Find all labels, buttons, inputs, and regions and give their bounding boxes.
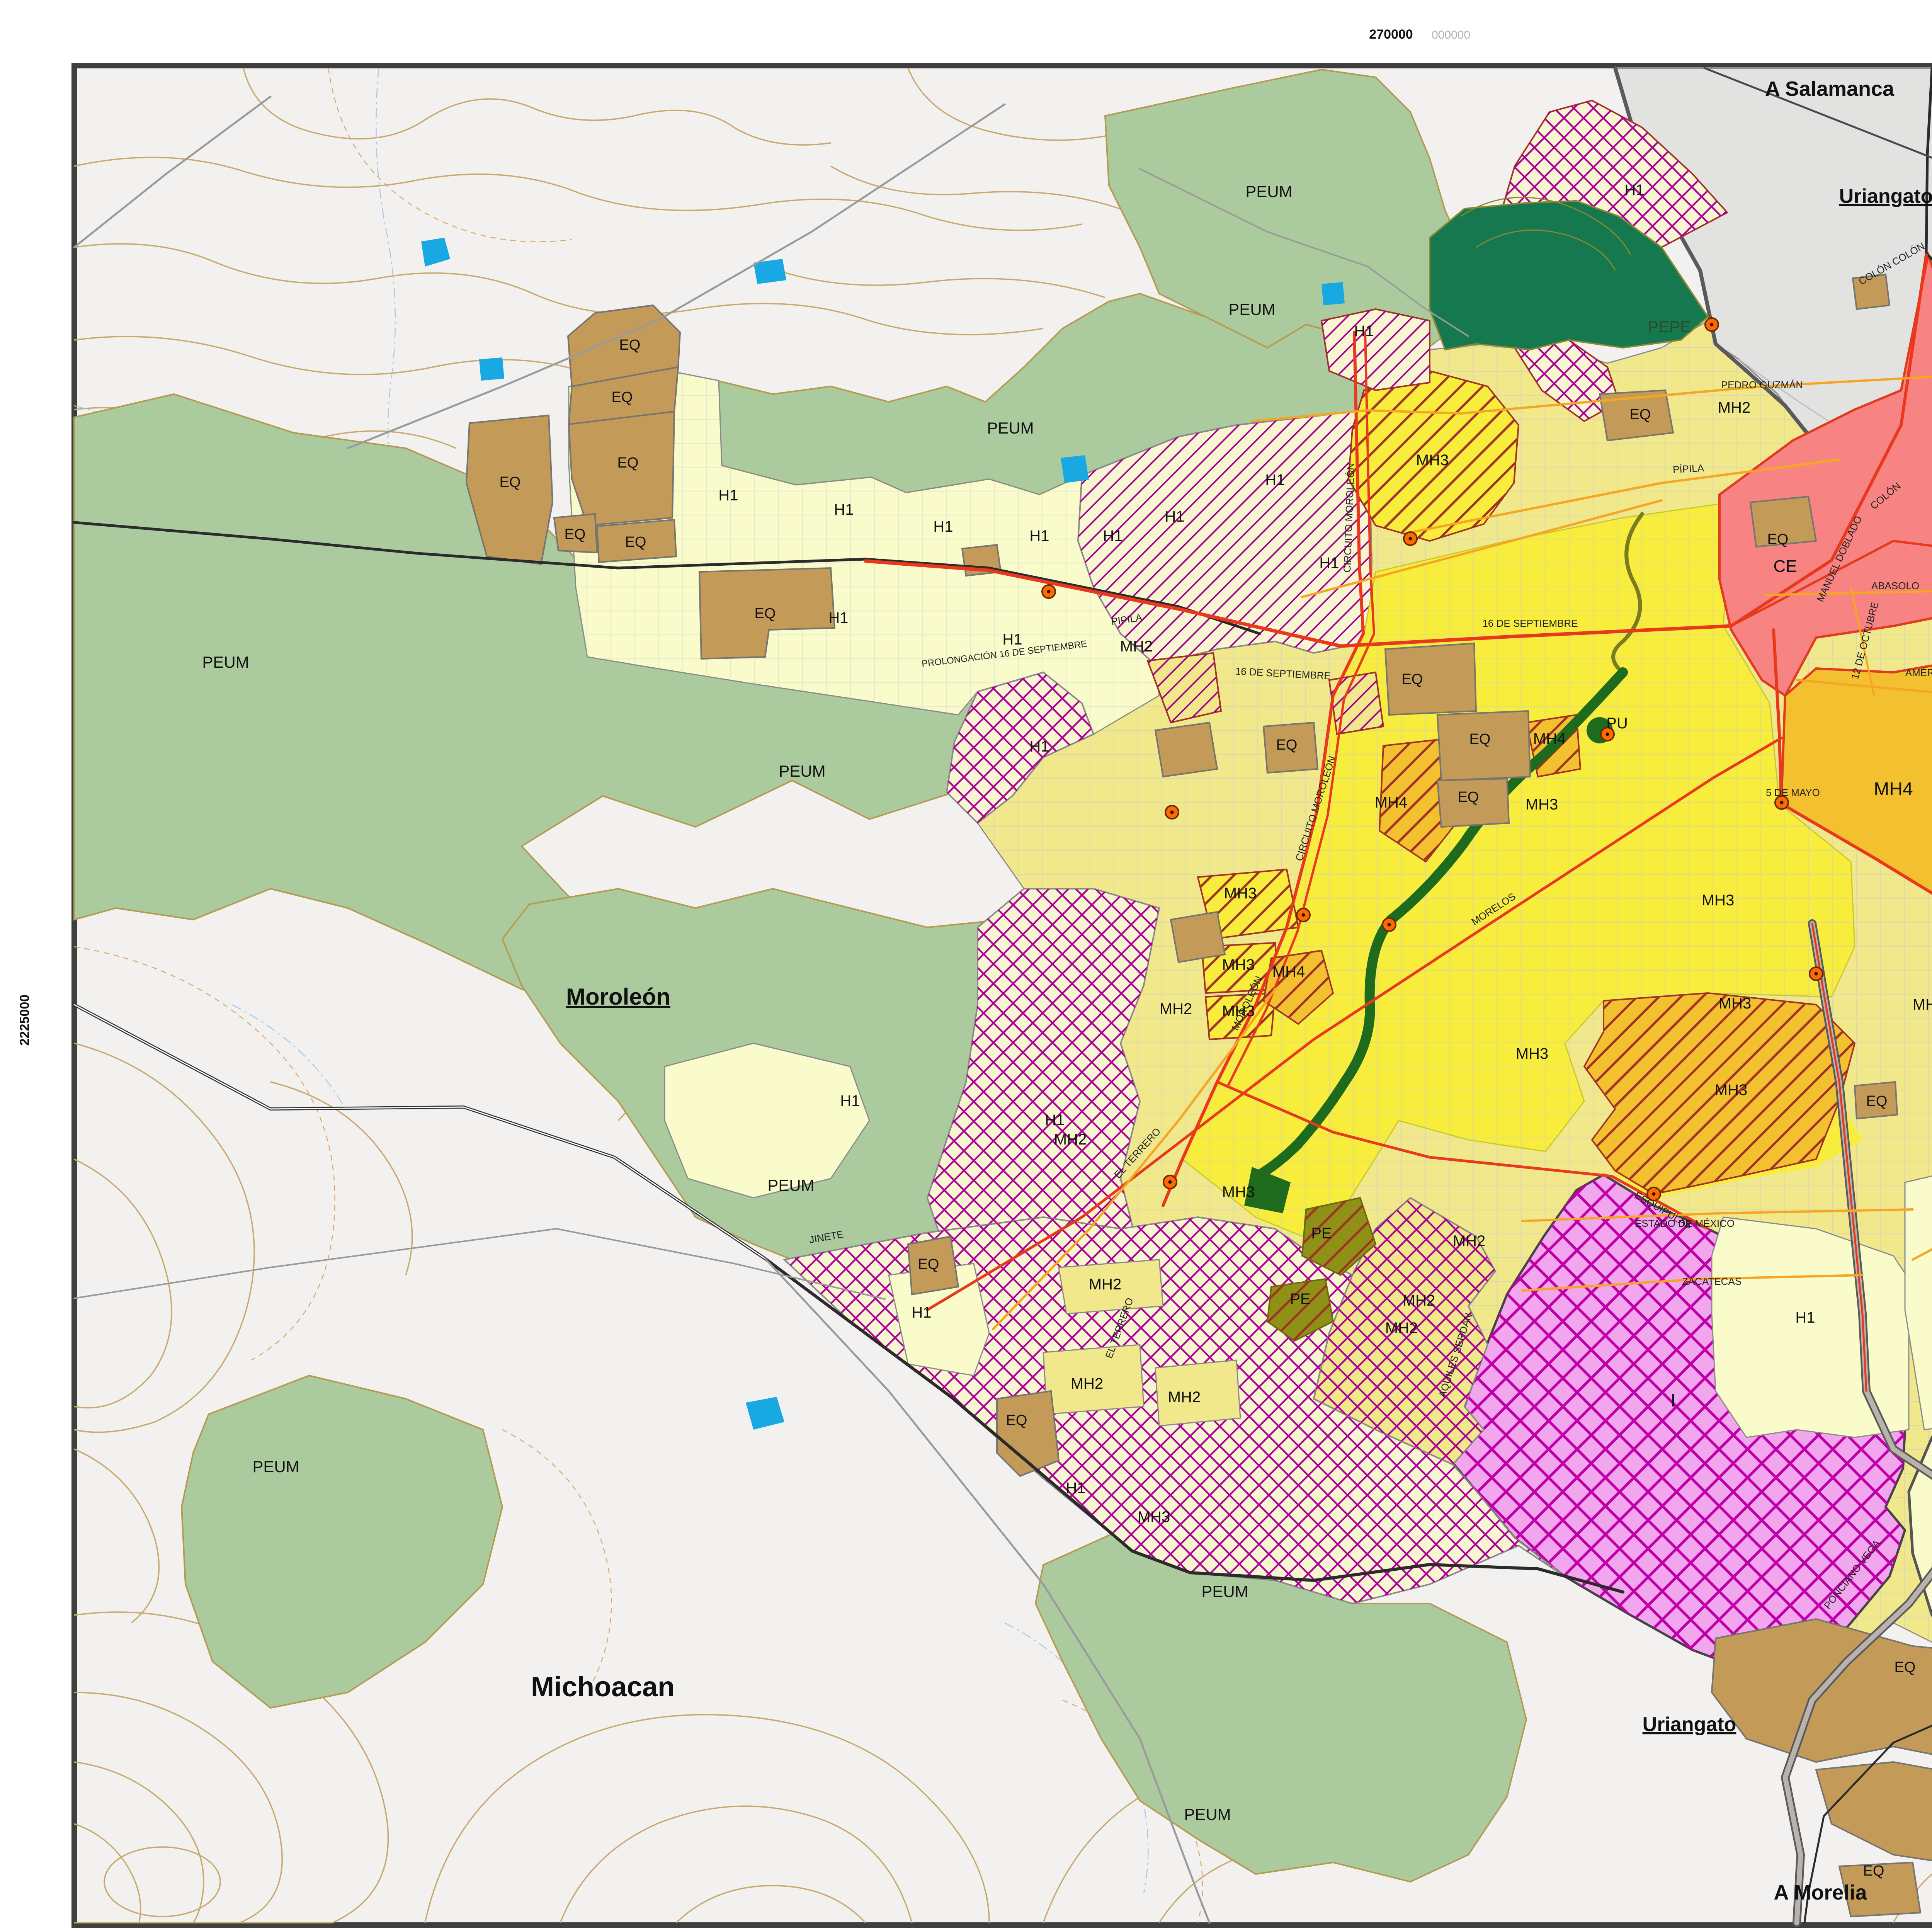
svg-text:EQ: EQ	[612, 389, 633, 405]
svg-text:MH3: MH3	[1702, 892, 1734, 909]
svg-text:MH3: MH3	[1222, 956, 1255, 973]
svg-text:ABASOLO: ABASOLO	[1871, 580, 1919, 592]
svg-text:H1: H1	[1165, 508, 1184, 525]
svg-text:MH2: MH2	[1913, 996, 1932, 1013]
svg-text:Uriangato: Uriangato	[1643, 1713, 1736, 1736]
svg-text:EQ: EQ	[1006, 1412, 1027, 1429]
svg-text:EQ: EQ	[1866, 1093, 1888, 1109]
svg-text:CE: CE	[1773, 557, 1797, 576]
svg-text:MH2: MH2	[1168, 1389, 1201, 1406]
svg-text:H1: H1	[933, 518, 953, 535]
svg-text:PEUM: PEUM	[202, 653, 249, 671]
svg-text:H1: H1	[1354, 323, 1374, 340]
svg-text:Uriangato: Uriangato	[1839, 185, 1932, 207]
svg-text:PEPE: PEPE	[1648, 318, 1691, 336]
svg-text:PEUM: PEUM	[1245, 182, 1292, 201]
svg-text:EQ: EQ	[918, 1256, 939, 1272]
svg-text:H1: H1	[1265, 471, 1285, 488]
svg-text:H1: H1	[1624, 182, 1644, 199]
svg-text:EQ: EQ	[1895, 1659, 1916, 1675]
svg-text:H1: H1	[1029, 738, 1049, 755]
svg-text:PÍPILA: PÍPILA	[1672, 462, 1704, 475]
svg-text:EQ: EQ	[1767, 531, 1789, 548]
svg-text:PEDRO GUZMÁN: PEDRO GUZMÁN	[1721, 379, 1803, 391]
svg-text:AMÉRICA: AMÉRICA	[1905, 667, 1932, 679]
svg-text:H1: H1	[1002, 631, 1022, 648]
svg-text:H1: H1	[828, 609, 848, 626]
svg-text:H1: H1	[1029, 527, 1049, 544]
svg-text:000000: 000000	[1432, 29, 1470, 41]
svg-text:PEUM: PEUM	[1201, 1582, 1248, 1600]
svg-text:16 DE SEPTIEMBRE: 16 DE SEPTIEMBRE	[1482, 617, 1578, 629]
svg-text:MH2: MH2	[1718, 399, 1750, 416]
svg-text:H1: H1	[1045, 1112, 1065, 1129]
svg-text:MH4: MH4	[1375, 794, 1407, 811]
svg-text:EQ: EQ	[500, 474, 521, 490]
svg-text:EQ: EQ	[1469, 731, 1491, 747]
svg-text:MH2: MH2	[1071, 1375, 1103, 1392]
svg-text:MH4: MH4	[1272, 963, 1305, 980]
svg-text:PEUM: PEUM	[987, 419, 1034, 437]
svg-text:EQ: EQ	[1276, 737, 1298, 753]
svg-text:EQ: EQ	[619, 337, 641, 353]
svg-text:H1: H1	[718, 487, 738, 504]
svg-text:PEUM: PEUM	[779, 762, 825, 780]
svg-text:MH2: MH2	[1453, 1233, 1485, 1250]
svg-text:PE: PE	[1311, 1225, 1332, 1242]
svg-text:MH2: MH2	[1089, 1276, 1121, 1293]
svg-text:H1: H1	[912, 1304, 931, 1321]
svg-text:MH3: MH3	[1224, 885, 1257, 902]
svg-text:H1: H1	[840, 1092, 860, 1109]
svg-text:270000: 270000	[1369, 27, 1413, 42]
svg-text:Moroleón: Moroleón	[566, 984, 670, 1010]
svg-text:H1: H1	[1795, 1309, 1815, 1326]
svg-text:ZACATECAS: ZACATECAS	[1682, 1276, 1742, 1287]
svg-text:MH3: MH3	[1715, 1082, 1747, 1099]
svg-text:EQ: EQ	[1458, 789, 1479, 805]
svg-text:A Morelia: A Morelia	[1774, 1881, 1867, 1904]
svg-text:5 DE MAYO: 5 DE MAYO	[1766, 787, 1820, 798]
svg-text:EQ: EQ	[617, 455, 639, 471]
svg-text:MH3: MH3	[1138, 1509, 1170, 1526]
svg-text:EQ: EQ	[625, 534, 646, 550]
svg-text:MH2: MH2	[1403, 1292, 1435, 1309]
svg-text:I: I	[1671, 1390, 1676, 1410]
svg-text:EQ: EQ	[1630, 406, 1651, 423]
svg-text:H1: H1	[834, 501, 854, 518]
svg-text:PEUM: PEUM	[1228, 300, 1275, 318]
svg-text:A Salamanca: A Salamanca	[1765, 77, 1895, 100]
svg-text:H1: H1	[1319, 554, 1339, 571]
svg-text:EQ: EQ	[755, 605, 776, 622]
svg-text:EQ: EQ	[565, 526, 586, 543]
svg-text:MH2: MH2	[1160, 1000, 1192, 1017]
svg-text:EQ: EQ	[1863, 1863, 1884, 1879]
svg-text:MH2: MH2	[1385, 1320, 1418, 1337]
svg-text:PE: PE	[1290, 1291, 1310, 1308]
svg-text:MH4: MH4	[1533, 730, 1566, 747]
svg-text:MH3: MH3	[1526, 796, 1558, 813]
svg-text:MH2: MH2	[1054, 1131, 1087, 1148]
svg-text:EQ: EQ	[1402, 671, 1423, 687]
svg-text:H1: H1	[1066, 1480, 1085, 1497]
svg-text:Michoacan: Michoacan	[531, 1672, 675, 1702]
svg-text:MH3: MH3	[1719, 995, 1751, 1012]
svg-text:MH4: MH4	[1874, 779, 1913, 799]
svg-text:PEUM: PEUM	[1184, 1805, 1231, 1823]
svg-text:MH2: MH2	[1120, 638, 1153, 655]
svg-text:PEUM: PEUM	[252, 1458, 299, 1476]
svg-text:MH3: MH3	[1416, 452, 1449, 469]
svg-text:PEUM: PEUM	[767, 1176, 814, 1194]
svg-text:MH3: MH3	[1516, 1045, 1548, 1062]
svg-text:PU: PU	[1606, 715, 1628, 732]
svg-text:2225000: 2225000	[17, 995, 32, 1046]
svg-text:H1: H1	[1103, 527, 1122, 544]
svg-text:MH3: MH3	[1222, 1184, 1255, 1201]
